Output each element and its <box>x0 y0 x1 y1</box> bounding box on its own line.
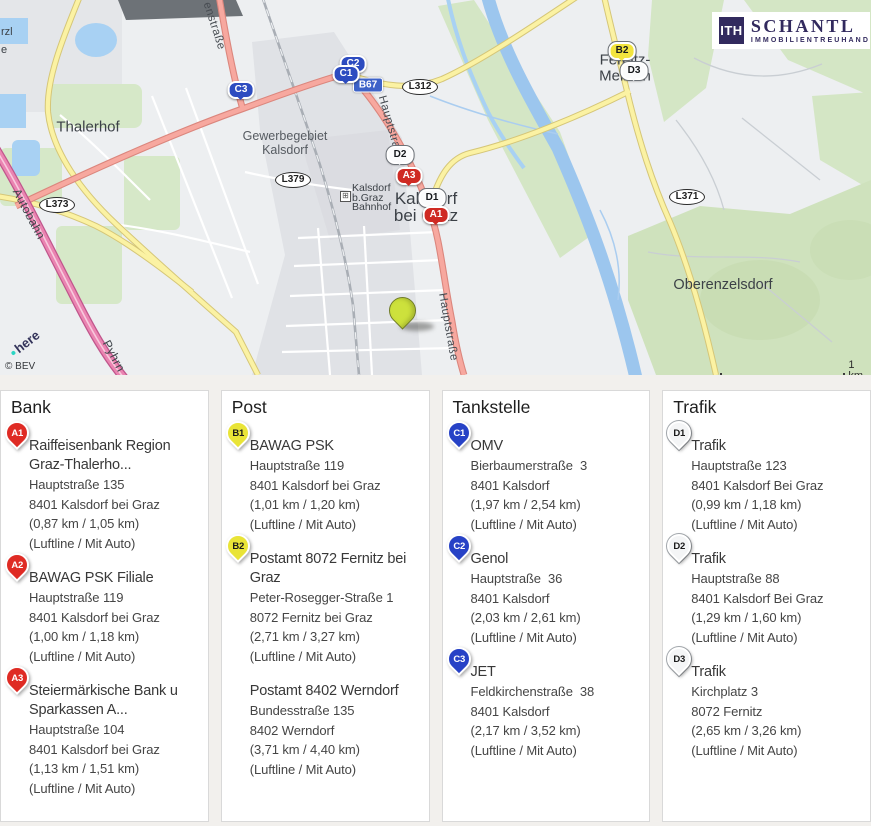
list-item: C2 Genol Hauptstraße 36 8401 Kalsdorf (2… <box>453 534 640 647</box>
map-marker-a1[interactable]: A1 <box>423 206 450 224</box>
train-station-icon: ⊞ <box>340 191 351 202</box>
poi-distance: (1,01 km / 1,20 km) <box>250 495 419 515</box>
poi-distance-type: (Luftline / Mit Auto) <box>471 741 640 761</box>
poi-city: 8402 Werndorf <box>250 721 419 741</box>
poi-name: BAWAG PSK <box>250 437 419 456</box>
poi-city: 8401 Kalsdorf bei Graz <box>29 740 198 760</box>
poi-street: Bundesstraße 135 <box>250 701 419 721</box>
map-marker-d3[interactable]: D3 <box>621 62 648 80</box>
poi-name: Postamt 8402 Werndorf <box>250 682 419 701</box>
place-label-edge2: e <box>1 44 7 56</box>
place-label-gewerbegebiet: Gewerbegebiet Kalsdorf <box>243 129 328 157</box>
map[interactable]: Thalerhof Gewerbegebiet Kalsdorf Kalsdor… <box>0 0 871 375</box>
poi-distance-type: (Luftline / Mit Auto) <box>691 628 860 648</box>
poi-distance: (1,13 km / 1,51 km) <box>29 759 198 779</box>
poi-street: Hauptstraße 119 <box>250 456 419 476</box>
map-marker-c1[interactable]: C1 <box>333 65 360 83</box>
road-shield-l371: L371 <box>669 189 705 205</box>
place-label-bahnhof: Kalsdorf b.Graz Bahnhof <box>352 184 391 213</box>
place-label-oberenzelsdorf: Oberenzelsdorf <box>673 277 772 293</box>
scale-line <box>720 373 845 375</box>
poi-distance-type: (Luftline / Mit Auto) <box>29 779 198 799</box>
poi-city: 8401 Kalsdorf <box>471 702 640 722</box>
category-title: Bank <box>11 397 198 418</box>
poi-city: 8401 Kalsdorf Bei Graz <box>691 476 860 496</box>
poi-city: 8401 Kalsdorf <box>471 589 640 609</box>
list-item: Postamt 8402 Werndorf Bundesstraße 135 8… <box>232 666 419 779</box>
poi-street: Hauptstraße 36 <box>471 569 640 589</box>
card-tankstelle: Tankstelle C1 OMV Bierbaumerstraße 3 840… <box>442 390 651 822</box>
poi-distance: (1,29 km / 1,60 km) <box>691 608 860 628</box>
poi-name: Genol <box>471 550 640 569</box>
category-title: Trafik <box>673 397 860 418</box>
list-item: C1 OMV Bierbaumerstraße 3 8401 Kalsdorf … <box>453 421 640 534</box>
poi-distance: (2,65 km / 3,26 km) <box>691 721 860 741</box>
poi-name: Postamt 8072 Fernitz bei Graz <box>250 550 419 588</box>
poi-distance: (2,03 km / 2,61 km) <box>471 608 640 628</box>
poi-distance: (1,97 km / 2,54 km) <box>471 495 640 515</box>
map-marker-b2[interactable]: B2 <box>609 42 636 60</box>
card-bank: Bank A1 Raiffeisenbank Region Graz-Thale… <box>0 390 209 822</box>
poi-street: Feldkirchenstraße 38 <box>471 682 640 702</box>
poi-city: 8401 Kalsdorf Bei Graz <box>691 589 860 609</box>
poi-city: 8401 Kalsdorf bei Graz <box>29 608 198 628</box>
brand-logo: ITH SCHANTL IMMOBILIENTREUHAND <box>712 12 870 49</box>
poi-distance-type: (Luftline / Mit Auto) <box>250 760 419 780</box>
poi-name: Raiffeisenbank Region Graz-Thalerho... <box>29 437 198 475</box>
card-post: Post B1 BAWAG PSK Hauptstraße 119 8401 K… <box>221 390 430 822</box>
poi-name: Trafik <box>691 550 860 569</box>
poi-city: 8401 Kalsdorf <box>471 476 640 496</box>
poi-distance: (1,00 km / 1,18 km) <box>29 627 198 647</box>
poi-name: Trafik <box>691 437 860 456</box>
poi-name: Steiermärkische Bank u Sparkassen A... <box>29 682 198 720</box>
map-marker-d1[interactable]: D1 <box>419 189 446 207</box>
poi-distance: (0,99 km / 1,18 km) <box>691 495 860 515</box>
poi-distance-type: (Luftline / Mit Auto) <box>29 534 198 554</box>
poi-distance: (2,71 km / 3,27 km) <box>250 627 419 647</box>
place-label-thalerhof: Thalerhof <box>56 119 119 136</box>
road-shield-l373: L373 <box>39 197 75 213</box>
category-title: Tankstelle <box>453 397 640 418</box>
poi-distance-type: (Luftline / Mit Auto) <box>471 628 640 648</box>
poi-street: Hauptstraße 119 <box>29 588 198 608</box>
map-graphics <box>0 0 871 375</box>
category-title: Post <box>232 397 419 418</box>
list-item: A3 Steiermärkische Bank u Sparkassen A..… <box>11 666 198 798</box>
map-marker-d2[interactable]: D2 <box>387 146 414 164</box>
list-item: A2 BAWAG PSK Filiale Hauptstraße 119 840… <box>11 553 198 666</box>
poi-distance: (3,71 km / 4,40 km) <box>250 740 419 760</box>
poi-name: OMV <box>471 437 640 456</box>
poi-city: 8072 Fernitz bei Graz <box>250 608 419 628</box>
poi-street: Peter-Rosegger-Straße 1 <box>250 588 419 608</box>
poi-city: 8401 Kalsdorf bei Graz <box>29 495 198 515</box>
brand-subtitle: IMMOBILIENTREUHAND <box>751 37 870 44</box>
poi-name: BAWAG PSK Filiale <box>29 569 198 588</box>
poi-distance-type: (Luftline / Mit Auto) <box>29 647 198 667</box>
list-item: B2 Postamt 8072 Fernitz bei Graz Peter-R… <box>232 534 419 666</box>
brand-monogram: ITH <box>719 17 744 44</box>
scale-label: 1 km <box>848 360 871 375</box>
road-shield-l379: L379 <box>275 172 311 188</box>
poi-cards: Bank A1 Raiffeisenbank Region Graz-Thale… <box>0 390 871 822</box>
poi-city: 8072 Fernitz <box>691 702 860 722</box>
poi-name: JET <box>471 663 640 682</box>
poi-name: Trafik <box>691 663 860 682</box>
poi-distance-type: (Luftline / Mit Auto) <box>250 647 419 667</box>
poi-distance-type: (Luftline / Mit Auto) <box>691 741 860 761</box>
list-item: B1 BAWAG PSK Hauptstraße 119 8401 Kalsdo… <box>232 421 419 534</box>
list-item: D1 Trafik Hauptstraße 123 8401 Kalsdorf … <box>673 421 860 534</box>
map-marker-c3[interactable]: C3 <box>228 81 255 99</box>
map-attribution: © BEV <box>5 361 35 372</box>
map-scalebar: 1 km <box>720 360 871 375</box>
poi-street: Hauptstraße 88 <box>691 569 860 589</box>
poi-distance: (0,87 km / 1,05 km) <box>29 514 198 534</box>
poi-distance-type: (Luftline / Mit Auto) <box>691 515 860 535</box>
poi-distance: (2,17 km / 3,52 km) <box>471 721 640 741</box>
list-item: D2 Trafik Hauptstraße 88 8401 Kalsdorf B… <box>673 534 860 647</box>
brand-name: SCHANTL <box>751 17 870 35</box>
poi-distance-type: (Luftline / Mit Auto) <box>471 515 640 535</box>
poi-street: Kirchplatz 3 <box>691 682 860 702</box>
poi-city: 8401 Kalsdorf bei Graz <box>250 476 419 496</box>
list-item: A1 Raiffeisenbank Region Graz-Thalerho..… <box>11 421 198 553</box>
place-label-edge1: rzl <box>1 26 13 38</box>
poi-street: Hauptstraße 123 <box>691 456 860 476</box>
poi-street: Hauptstraße 135 <box>29 475 198 495</box>
here-dot-icon <box>11 350 17 356</box>
card-trafik: Trafik D1 Trafik Hauptstraße 123 8401 Ka… <box>662 390 871 822</box>
poi-street: Bierbaumerstraße 3 <box>471 456 640 476</box>
poi-street: Hauptstraße 104 <box>29 720 198 740</box>
page: { "logo": { "monogram": "ITH", "name": "… <box>0 0 871 826</box>
poi-distance-type: (Luftline / Mit Auto) <box>250 515 419 535</box>
map-marker-a3[interactable]: A3 <box>396 167 423 185</box>
road-shield-l312: L312 <box>402 79 438 95</box>
list-item: C3 JET Feldkirchenstraße 38 8401 Kalsdor… <box>453 647 640 760</box>
list-item: D3 Trafik Kirchplatz 3 8072 Fernitz (2,6… <box>673 647 860 760</box>
